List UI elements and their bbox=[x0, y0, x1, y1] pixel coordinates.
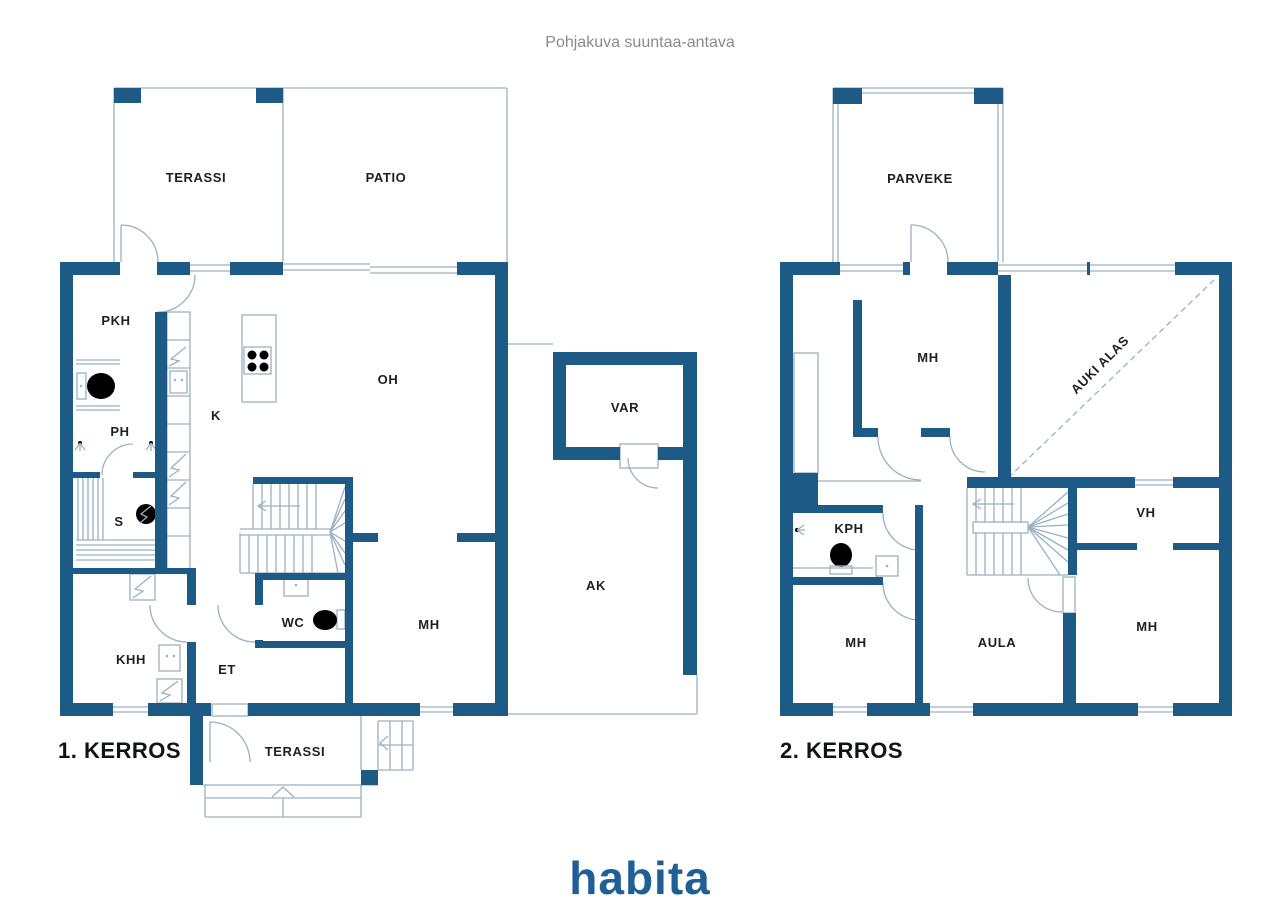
door-arc bbox=[102, 444, 133, 475]
room-label-oh: OH bbox=[378, 372, 399, 387]
room-label-mh: MH bbox=[845, 635, 866, 650]
room-label-terassi: TERASSI bbox=[166, 170, 227, 185]
floor2-walls bbox=[780, 88, 1232, 716]
door-arc bbox=[218, 605, 255, 642]
door-arc bbox=[210, 704, 250, 762]
appliance-icon bbox=[169, 454, 186, 477]
room-label-vh: VH bbox=[1136, 505, 1155, 520]
room-label-s: S bbox=[114, 514, 123, 529]
door-arc bbox=[620, 444, 658, 488]
direction-arrow bbox=[380, 736, 388, 750]
door-arc bbox=[950, 437, 985, 472]
door-arc bbox=[911, 225, 948, 262]
room-label-aula: AULA bbox=[978, 635, 1017, 650]
room-label-terassi: TERASSI bbox=[265, 744, 326, 759]
door-arc bbox=[1028, 577, 1075, 613]
appliance-icon bbox=[130, 574, 155, 600]
shower-icon bbox=[795, 525, 805, 535]
floor-plan-image: Pohjakuva suuntaa-antava bbox=[0, 0, 1280, 905]
sink-icon bbox=[876, 556, 898, 576]
shower-icon bbox=[75, 441, 85, 451]
room-label-ph: PH bbox=[110, 424, 129, 439]
room-label-ak: AK bbox=[586, 578, 606, 593]
stairs-icon bbox=[967, 488, 1068, 575]
stairs-icon bbox=[378, 721, 413, 770]
floor-plan-2: PARVEKEMHAUKI ALASKPHVHMHAULAMH 2. KERRO… bbox=[780, 88, 1232, 763]
floor1-room-labels: TERASSIPATIOPKHPHSKOHKHHETWCMHVARAKTERAS… bbox=[101, 170, 639, 759]
toilet-icon bbox=[77, 373, 115, 399]
floor2-name: 2. KERROS bbox=[780, 738, 903, 763]
toilet-icon bbox=[313, 610, 345, 630]
room-label-pkh: PKH bbox=[101, 313, 130, 328]
room-label-k: K bbox=[211, 408, 221, 423]
void-diagonal bbox=[1008, 278, 1216, 478]
room-label-et: ET bbox=[218, 662, 236, 677]
floor-plan-1: TERASSIPATIOPKHPHSKOHKHHETWCMHVARAKTERAS… bbox=[58, 88, 697, 817]
stairs-icon bbox=[240, 484, 345, 573]
direction-arrow bbox=[258, 501, 300, 511]
room-label-mh: MH bbox=[917, 350, 938, 365]
direction-arrow bbox=[272, 787, 294, 797]
floor1-name: 1. KERROS bbox=[58, 738, 181, 763]
habita-logo: habita bbox=[569, 852, 710, 904]
door-arc bbox=[883, 513, 920, 550]
sink-icon bbox=[159, 645, 180, 671]
room-label-khh: KHH bbox=[116, 652, 146, 667]
room-label-var: VAR bbox=[611, 400, 639, 415]
shower-icon bbox=[146, 441, 156, 451]
appliance-icon bbox=[169, 347, 186, 366]
room-label-mh: MH bbox=[418, 617, 439, 632]
door-arc bbox=[878, 437, 921, 480]
floor1-walls bbox=[60, 88, 697, 785]
toilet-icon bbox=[830, 543, 852, 574]
page-title: Pohjakuva suuntaa-antava bbox=[545, 34, 735, 51]
door-arc bbox=[883, 583, 920, 620]
room-label-wc: WC bbox=[282, 615, 305, 630]
sink-icon bbox=[170, 371, 187, 393]
room-label-auki-alas: AUKI ALAS bbox=[1068, 333, 1132, 397]
sauna-stove-icon bbox=[136, 504, 156, 524]
room-label-parveke: PARVEKE bbox=[887, 171, 953, 186]
appliance-icon bbox=[157, 679, 182, 703]
room-label-mh: MH bbox=[1136, 619, 1157, 634]
room-label-patio: PATIO bbox=[366, 170, 407, 185]
room-label-kph: KPH bbox=[834, 521, 863, 536]
appliance-icon bbox=[169, 482, 186, 505]
stove-icon bbox=[244, 347, 271, 374]
door-arc bbox=[150, 605, 187, 642]
